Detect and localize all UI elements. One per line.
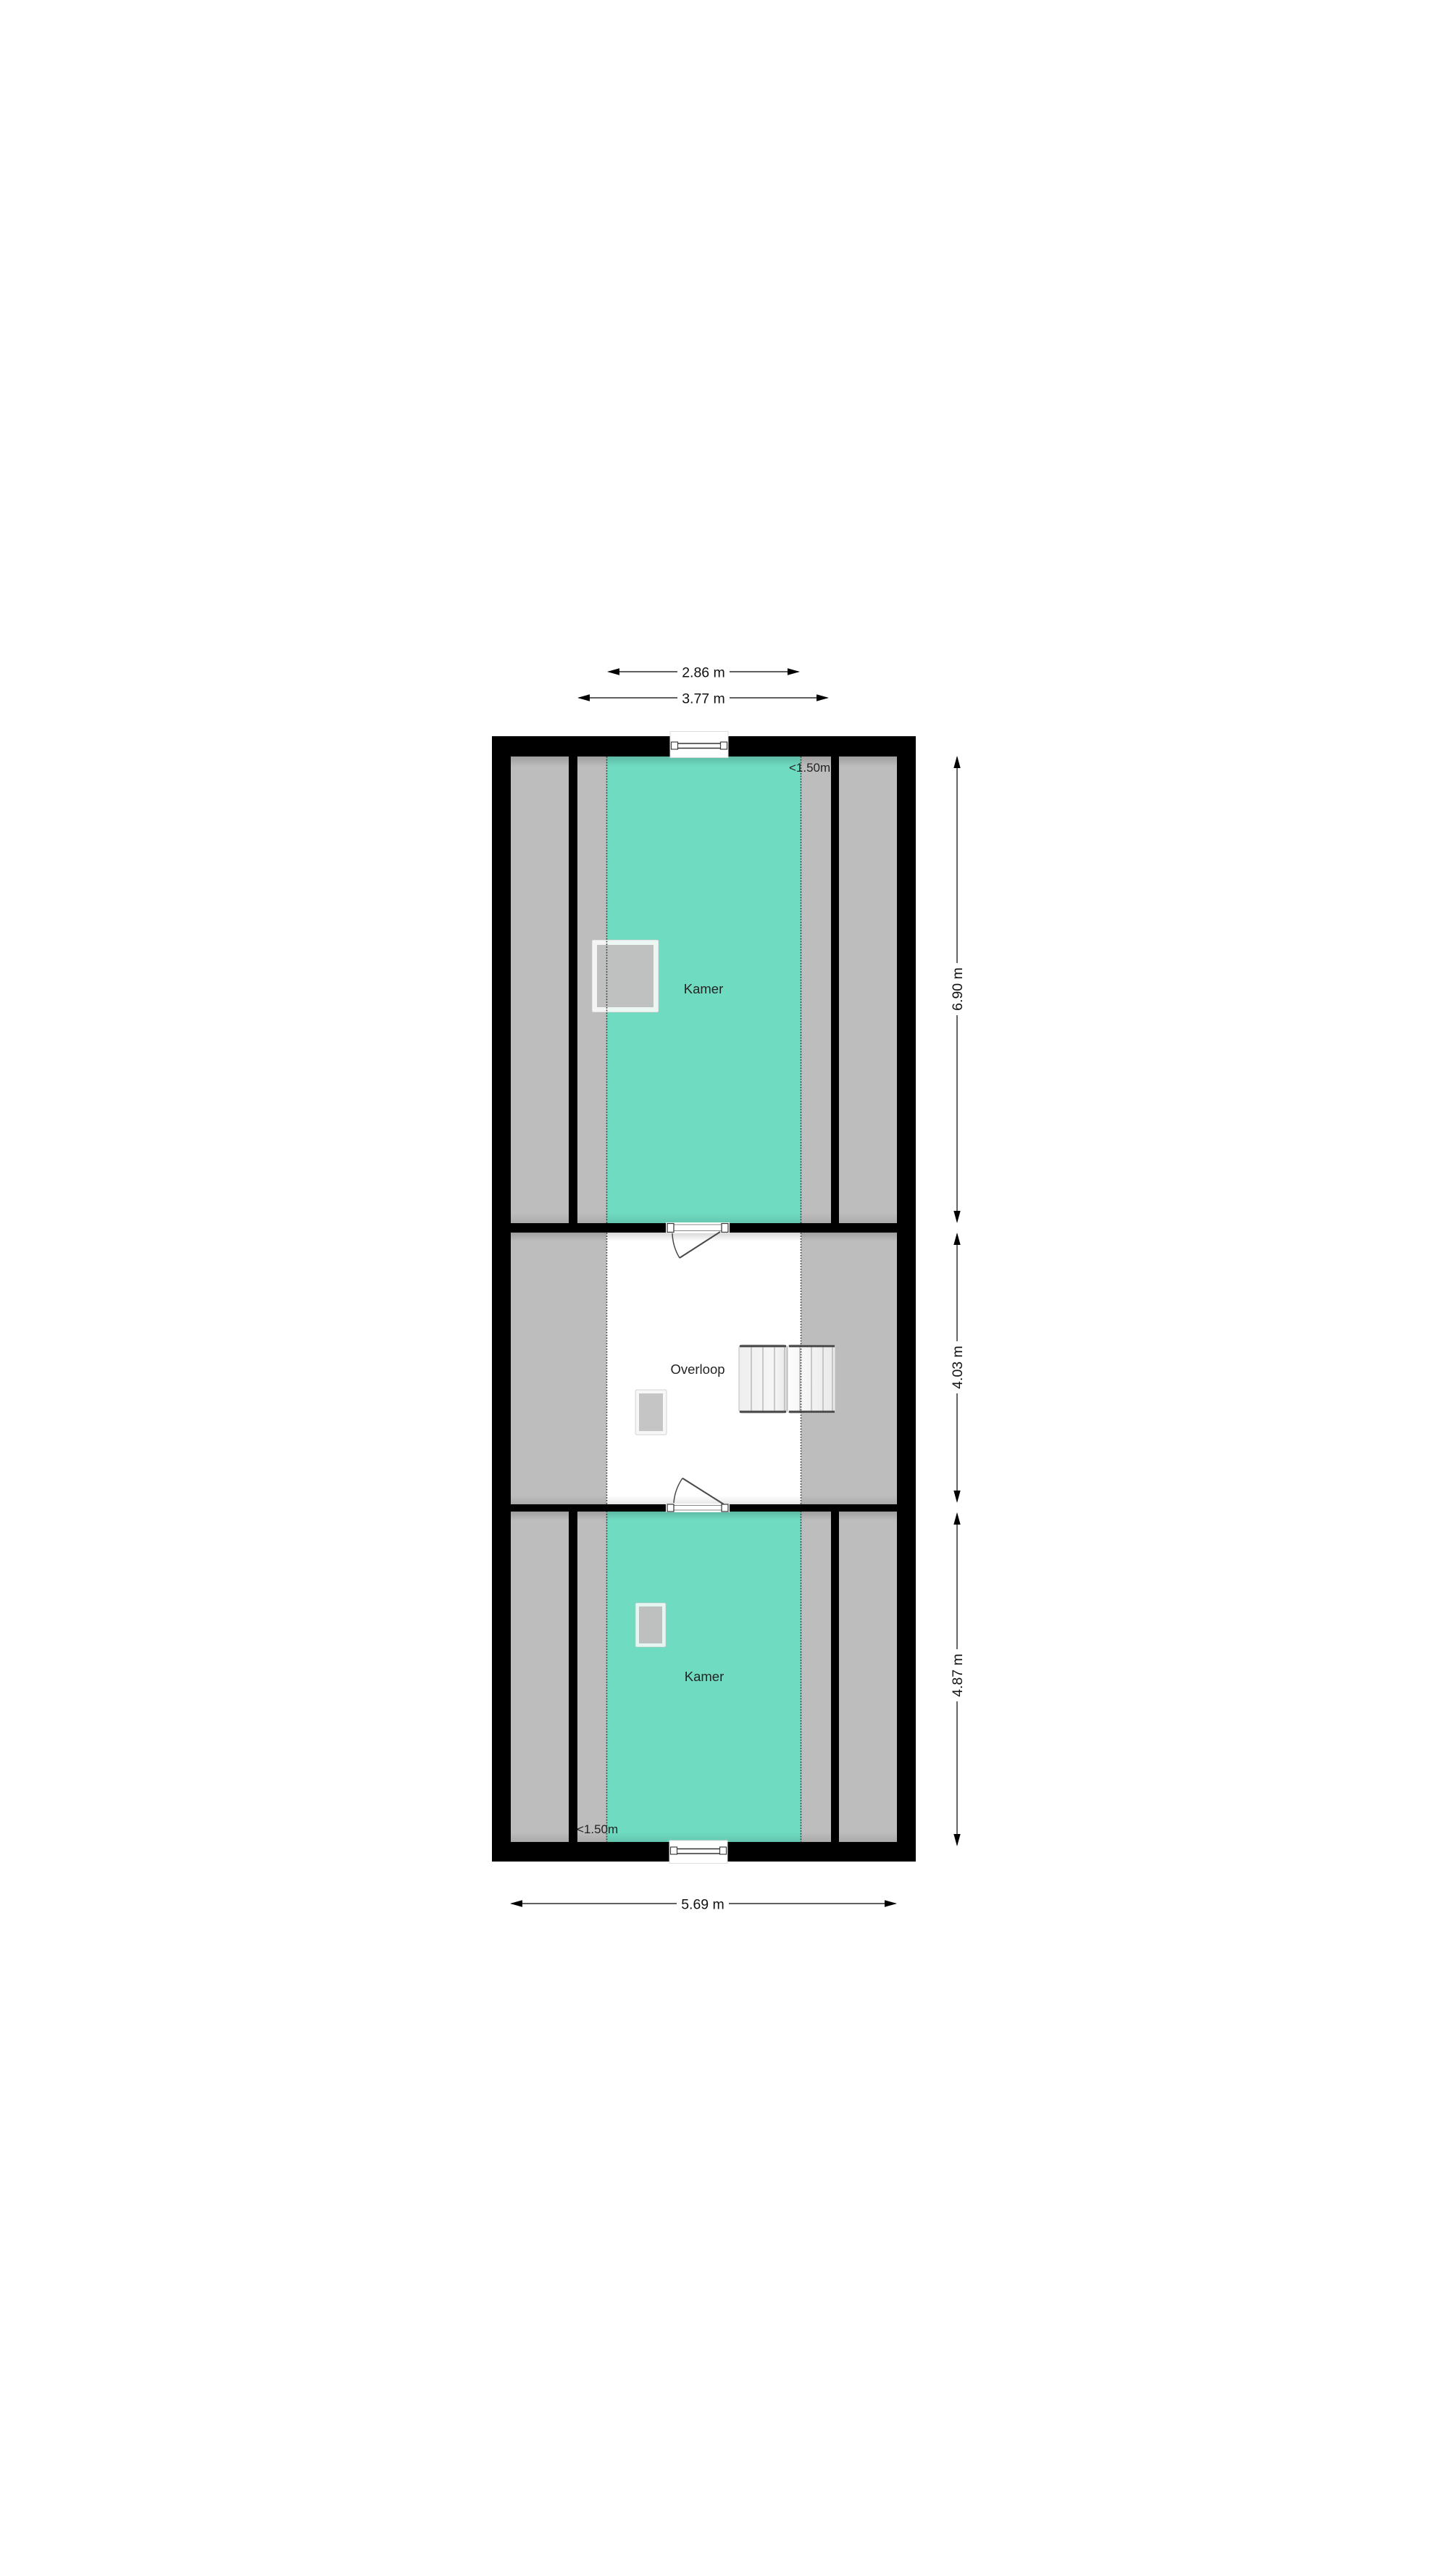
svg-text:Kamer: Kamer — [685, 1669, 724, 1684]
svg-text:2.86 m: 2.86 m — [682, 665, 725, 681]
svg-text:5.69 m: 5.69 m — [681, 1897, 724, 1913]
svg-text:Overloop: Overloop — [670, 1362, 724, 1377]
svg-text:4.03 m: 4.03 m — [950, 1346, 966, 1389]
svg-text:4.87 m: 4.87 m — [950, 1654, 966, 1697]
svg-text:3.77 m: 3.77 m — [682, 691, 725, 707]
svg-text:<1.50m: <1.50m — [577, 1822, 618, 1836]
svg-text:<1.50m: <1.50m — [789, 761, 830, 775]
svg-text:Kamer: Kamer — [684, 981, 724, 996]
svg-text:6.90 m: 6.90 m — [950, 967, 966, 1011]
